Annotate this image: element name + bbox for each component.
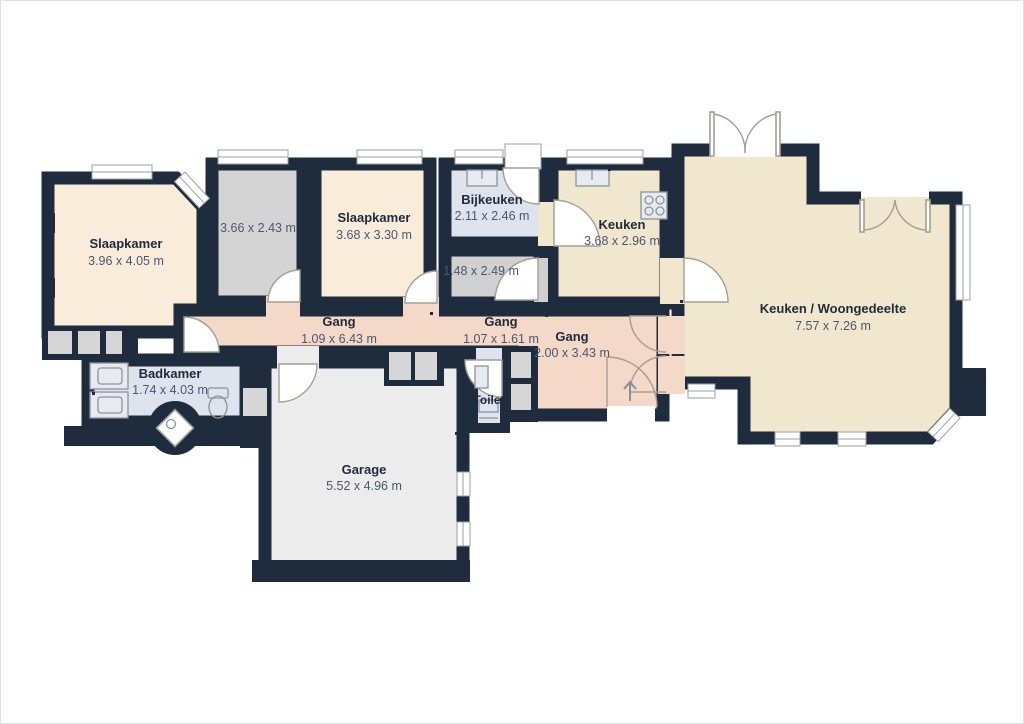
window	[455, 150, 503, 164]
door-leaf	[860, 200, 864, 232]
room-label: Slaapkamer	[90, 236, 163, 251]
door-gap	[660, 258, 685, 304]
sink-icon	[576, 170, 609, 186]
door-gap	[861, 188, 929, 198]
closet	[511, 352, 531, 378]
room-label: Slaapkamer	[338, 210, 411, 225]
window	[775, 432, 800, 446]
closet	[78, 331, 100, 354]
wall-bump	[42, 213, 55, 233]
window	[92, 165, 152, 179]
entrance-gap	[607, 406, 655, 424]
room-dims: 3.66 x 2.43 m	[220, 221, 296, 235]
room-dims: 2.00 x 3.43 m	[534, 346, 610, 360]
room-dims: 1.09 x 6.43 m	[301, 332, 377, 346]
shower-icon	[148, 401, 202, 455]
room-label: Gang	[322, 314, 355, 329]
window	[218, 150, 288, 164]
window	[838, 432, 866, 446]
closet	[48, 331, 72, 354]
window	[956, 205, 970, 300]
room-dims: 2.11 x 2.46 m	[455, 209, 530, 223]
door-gap	[505, 144, 541, 169]
passage-opening	[243, 388, 267, 416]
exterior-pier	[956, 368, 986, 416]
window	[567, 150, 643, 164]
window	[688, 384, 715, 398]
sink-icon	[475, 366, 488, 388]
room-dims: 7.57 x 7.26 m	[795, 319, 871, 333]
stove-icon	[641, 192, 667, 219]
door-leaf	[926, 200, 930, 232]
sink-icon	[467, 170, 497, 186]
closet	[511, 384, 531, 410]
window	[457, 522, 470, 546]
room-dims: 3.96 x 4.05 m	[88, 254, 164, 268]
room-dims: 1.48 x 2.49 m	[443, 264, 519, 278]
room-label: Gang	[484, 314, 517, 329]
door-gap	[658, 356, 685, 394]
window	[457, 472, 470, 496]
window	[357, 150, 422, 164]
room-label: Garage	[342, 462, 387, 477]
room-dims: 5.52 x 4.96 m	[326, 479, 402, 493]
room-label: Toilet	[473, 393, 504, 407]
sink-icon	[90, 363, 128, 389]
closet	[389, 352, 411, 380]
door-gap	[658, 316, 685, 354]
room-label: Gang	[555, 329, 588, 344]
closet	[415, 352, 437, 380]
floorplan-page: Slaapkamer 3.96 x 4.05 m 3.66 x 2.43 m S…	[0, 0, 1024, 724]
door-leaf	[710, 112, 714, 156]
room-label: Badkamer	[139, 366, 202, 381]
room-dims: 1.07 x 1.61 m	[463, 332, 539, 346]
room-label: Keuken	[599, 217, 646, 232]
room-label: Bijkeuken	[461, 192, 522, 207]
floorplan-drawing: Slaapkamer 3.96 x 4.05 m 3.66 x 2.43 m S…	[0, 0, 1024, 724]
sink-icon	[90, 392, 128, 418]
room-dims: 1.74 x 4.03 m	[132, 383, 208, 397]
garage-bottom-wall	[252, 560, 470, 582]
wall-bump	[42, 278, 55, 298]
door-leaf	[776, 112, 780, 156]
room-label: Keuken / Woongedeelte	[760, 301, 906, 316]
room-dims: 3.68 x 3.30 m	[336, 228, 412, 242]
closet	[106, 331, 122, 354]
room-dims: 3.68 x 2.96 m	[584, 234, 660, 248]
